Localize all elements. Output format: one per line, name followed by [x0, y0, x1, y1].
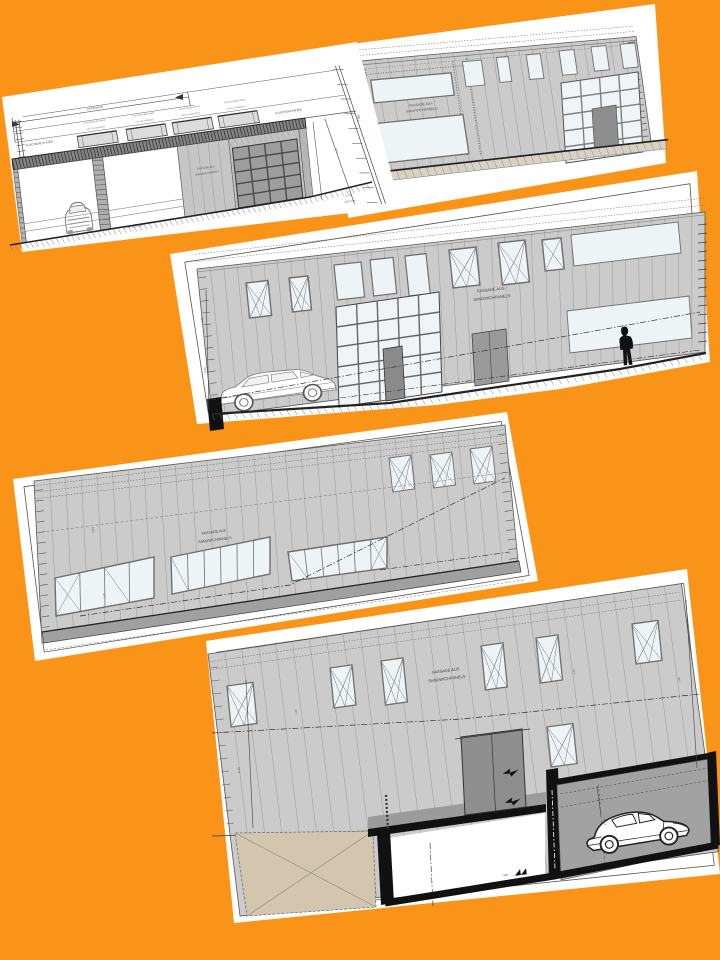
svg-text:4.40: 4.40: [237, 767, 242, 774]
svg-text:7.98: 7.98: [502, 873, 508, 878]
svg-text:2.78: 2.78: [603, 819, 608, 826]
svg-text:6.00: 6.00: [203, 367, 208, 374]
svg-text:4.60: 4.60: [200, 317, 205, 324]
svg-text:4.93: 4.93: [91, 527, 96, 534]
